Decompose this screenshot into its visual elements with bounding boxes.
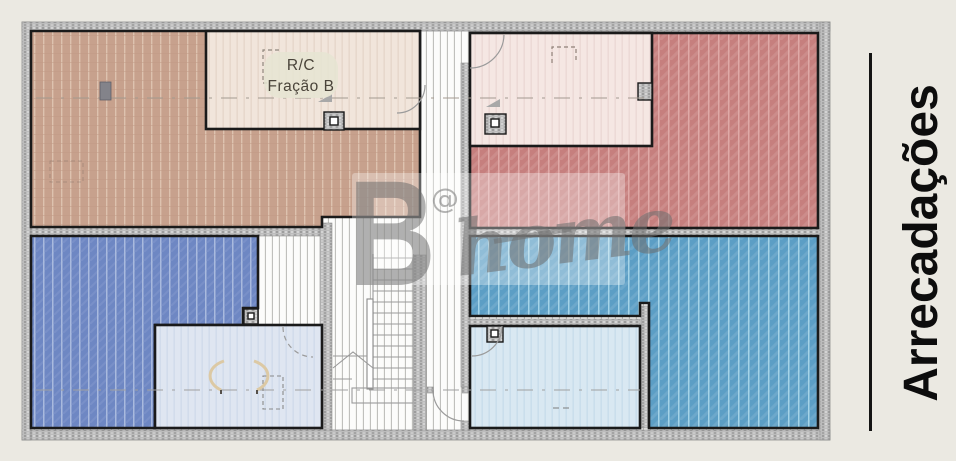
- side-divider-line: [869, 53, 872, 431]
- room-label-line2: Fração B: [268, 78, 335, 95]
- floor-plan-page: B @ home R/C Fração B Arrecadações: [0, 0, 956, 461]
- room-label-group: R/C Fração B: [264, 52, 338, 98]
- floor-plan-drawing: B @ home R/C Fração B: [0, 0, 956, 461]
- side-title-vertical: Arrecadações: [894, 52, 949, 434]
- region-room-bottom-middle-left: [155, 325, 322, 428]
- side-title-text: Arrecadações: [895, 84, 948, 402]
- watermark-letter-b: B: [348, 149, 436, 317]
- room-label-line1: R/C: [287, 57, 315, 74]
